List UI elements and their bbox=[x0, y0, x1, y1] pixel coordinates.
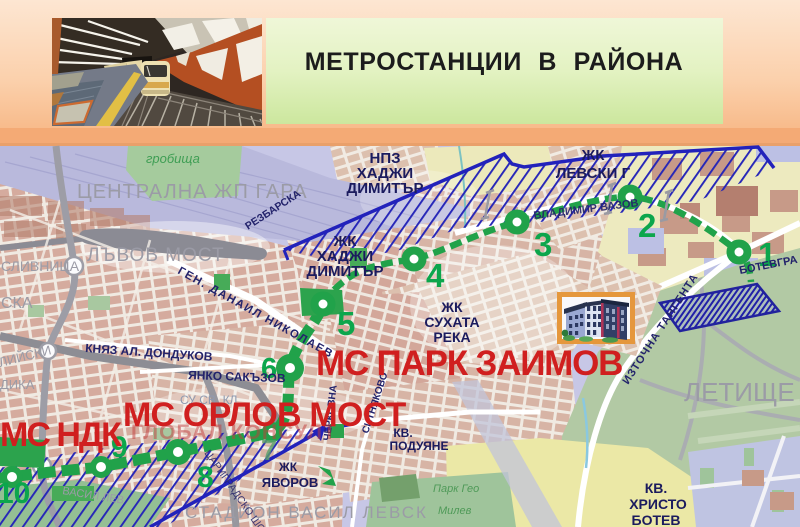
svg-text:ЖК: ЖК bbox=[278, 460, 298, 474]
svg-text:5: 5 bbox=[337, 305, 355, 342]
svg-text:МС ОРЛОВ МОСТ: МС ОРЛОВ МОСТ bbox=[123, 396, 406, 434]
svg-text:10: 10 bbox=[0, 477, 30, 510]
svg-text:2: 2 bbox=[638, 207, 656, 244]
svg-text:БОТЕВ: БОТЕВ bbox=[632, 512, 681, 527]
svg-text:СТАДИОН ВАСИЛ ЛЕВСК: СТАДИОН ВАСИЛ ЛЕВСК bbox=[185, 503, 428, 522]
svg-text:ДИМИТЪР: ДИМИТЪР bbox=[307, 263, 384, 280]
svg-text:Парк Гео: Парк Гео bbox=[433, 483, 479, 495]
svg-text:СКА: СКА bbox=[1, 295, 33, 312]
svg-text:ЛЕТИЩЕ: ЛЕТИЩЕ bbox=[684, 377, 795, 407]
svg-text:гробища: гробища bbox=[146, 151, 200, 166]
svg-text:ЯВОРОВ: ЯВОРОВ bbox=[262, 475, 319, 490]
svg-text:ЖК: ЖК bbox=[581, 147, 606, 164]
svg-text:МЕТРОСТАНЦИИ В РАЙОНА: МЕТРОСТАНЦИИ В РАЙОНА bbox=[305, 46, 684, 76]
svg-text:МС ПАРК ЗАИМОВ: МС ПАРК ЗАИМОВ bbox=[316, 344, 622, 383]
svg-text:4: 4 bbox=[426, 257, 445, 294]
svg-text:3: 3 bbox=[534, 226, 552, 263]
svg-text:ЛЕВСКИ Г: ЛЕВСКИ Г bbox=[556, 165, 631, 182]
svg-text:СУХАТА: СУХАТА bbox=[424, 314, 479, 330]
svg-text:КВ.: КВ. bbox=[645, 480, 668, 496]
svg-text:Милев: Милев bbox=[438, 505, 472, 517]
svg-text:ЛЪВОВ МОСТ: ЛЪВОВ МОСТ bbox=[87, 245, 225, 266]
svg-text:МС НДК: МС НДК bbox=[0, 416, 122, 454]
svg-text:ЖК: ЖК bbox=[440, 299, 463, 315]
svg-text:ДИМИТЪР: ДИМИТЪР bbox=[347, 180, 424, 197]
svg-text:ЦЕНТРАЛНА ЖП ГАРА: ЦЕНТРАЛНА ЖП ГАРА bbox=[77, 181, 308, 203]
svg-text:ПОДУЯНЕ: ПОДУЯНЕ bbox=[390, 439, 449, 453]
svg-text:РЕКА: РЕКА bbox=[433, 329, 470, 345]
svg-text:СЛИВНИЦА: СЛИВНИЦА bbox=[1, 258, 80, 274]
svg-text:ХРИСТО: ХРИСТО bbox=[629, 496, 687, 512]
svg-text:ДИКА: ДИКА bbox=[0, 377, 35, 392]
